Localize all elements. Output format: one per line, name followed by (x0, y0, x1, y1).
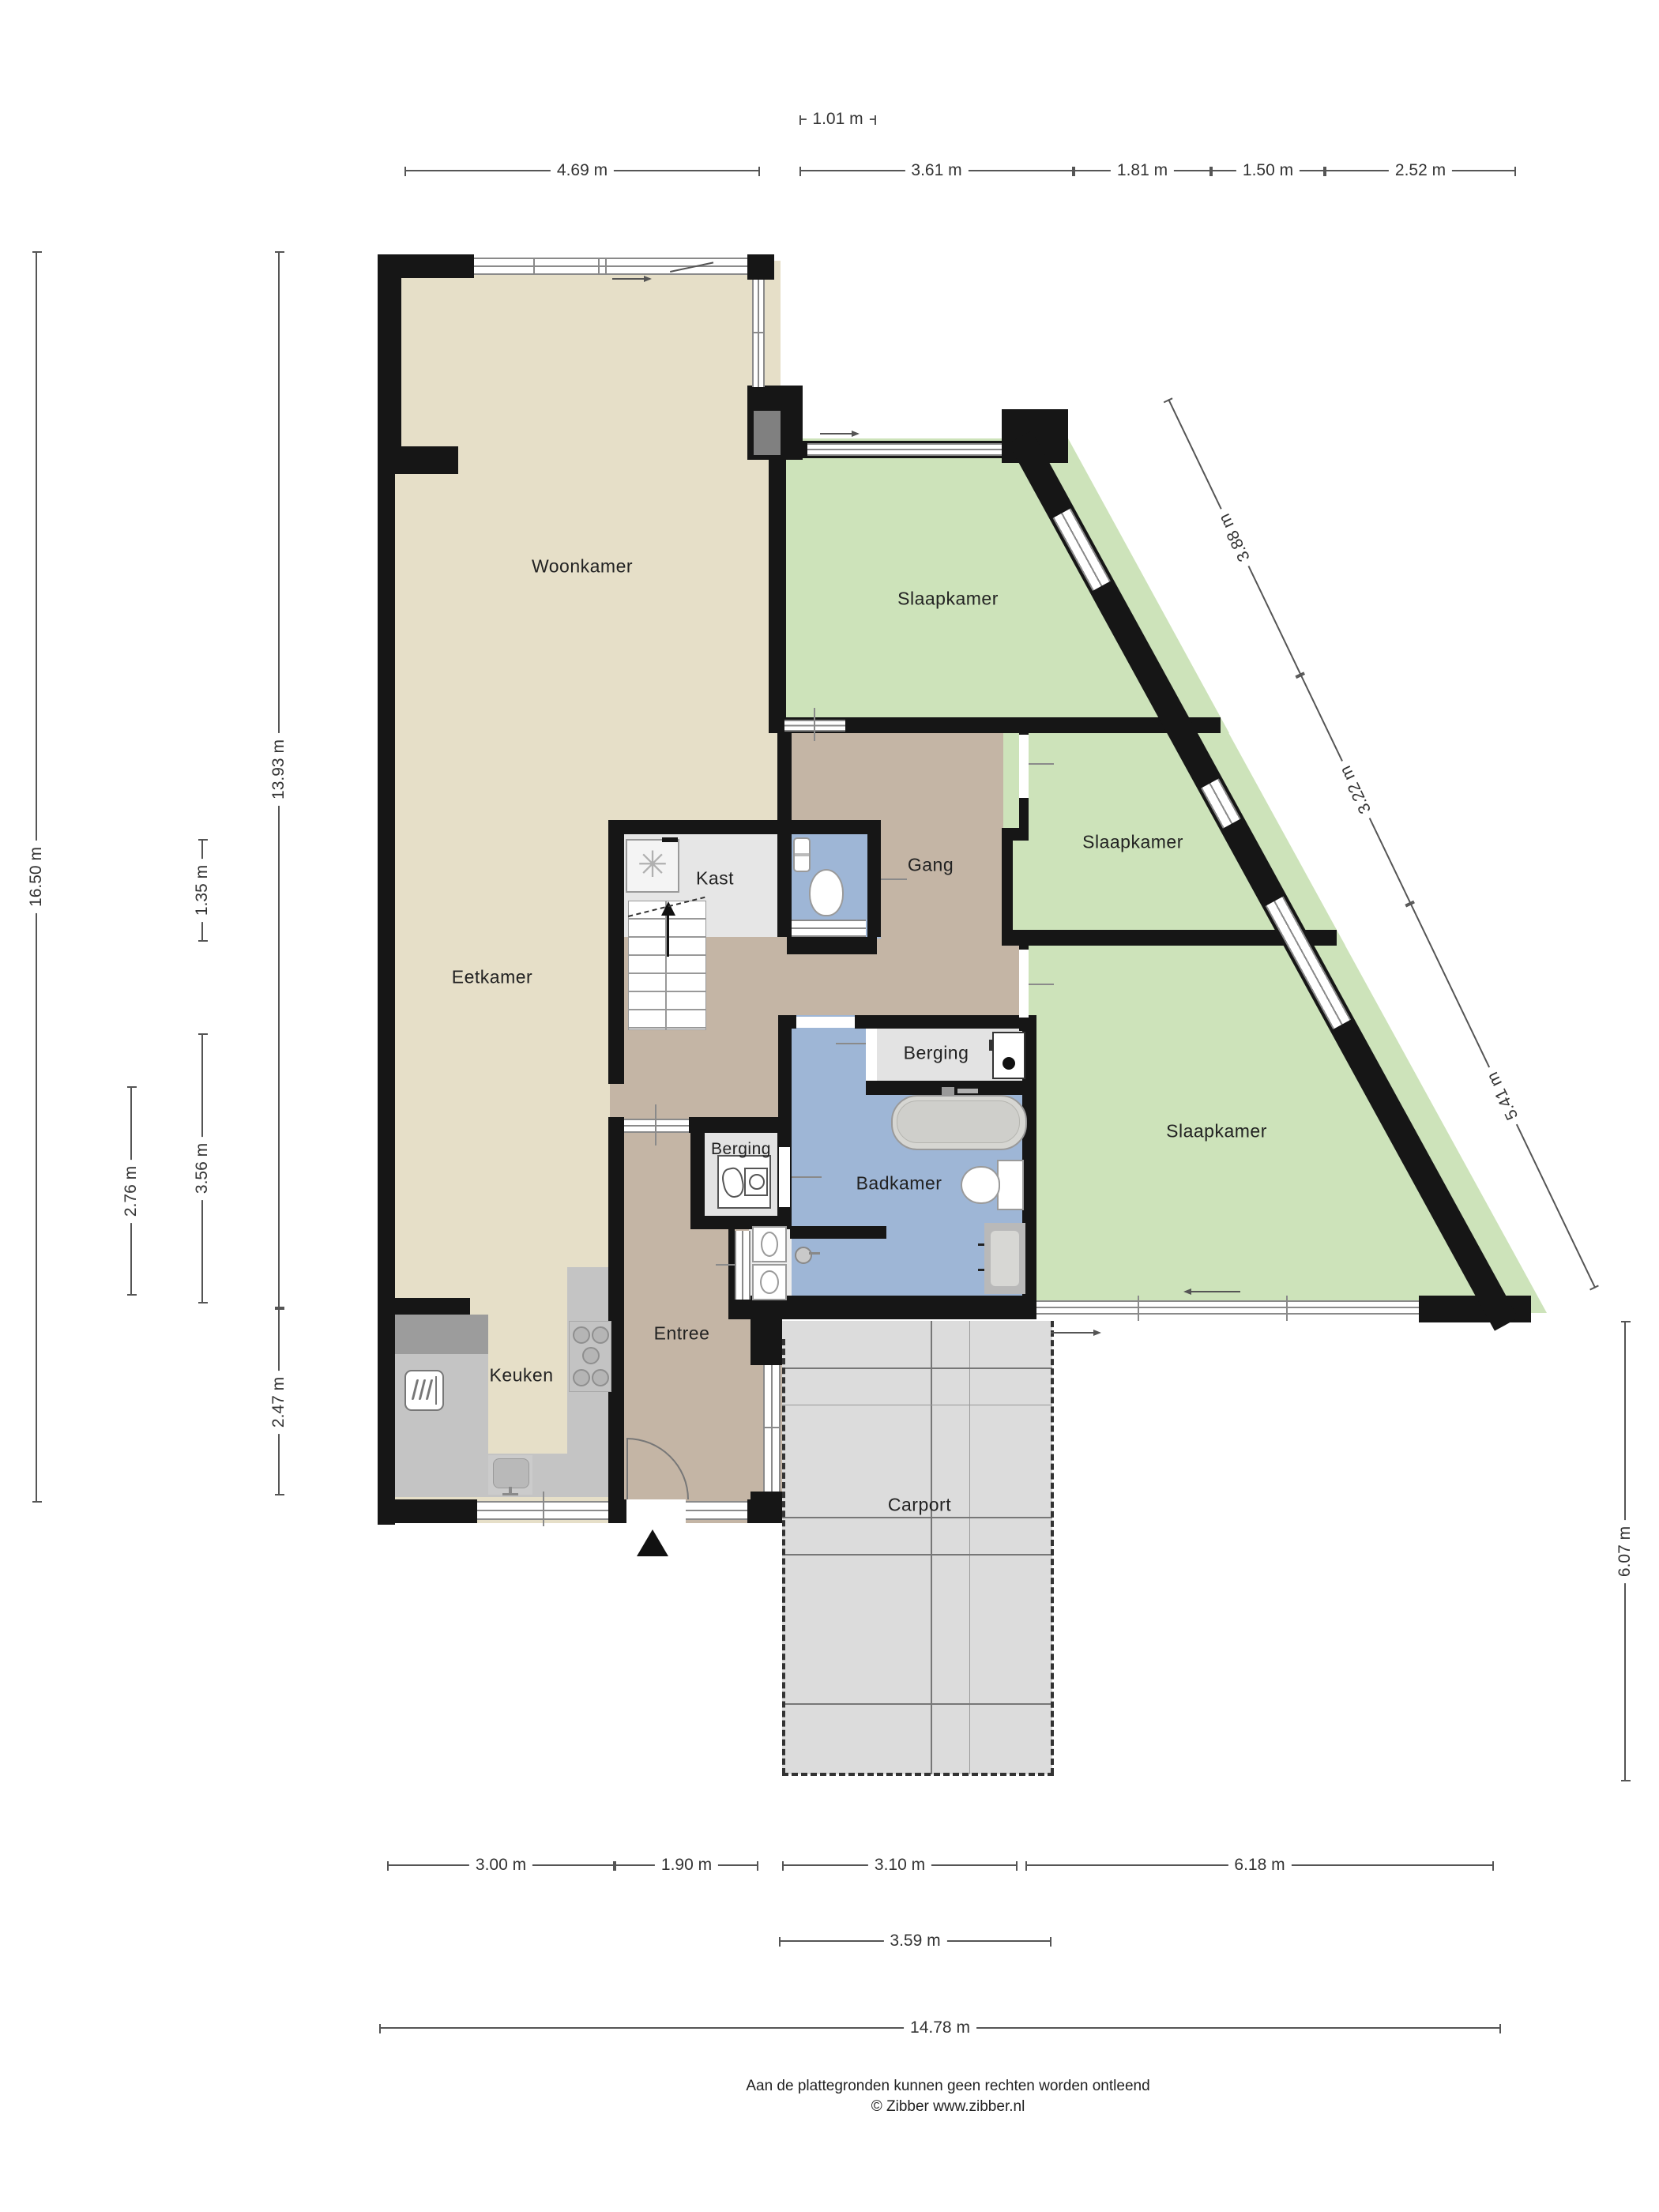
dim-label: 3.61 m (905, 161, 968, 180)
dim-label: 2.76 m (122, 1159, 141, 1222)
boiler-icon (752, 1226, 787, 1262)
shower-tray (991, 1231, 1019, 1286)
kitchen-sink (488, 1455, 532, 1495)
room-label-slaapkamer-onder: Slaapkamer (1166, 1121, 1267, 1142)
dim-left-6: 2.47 m (278, 1308, 280, 1495)
boiler-oval (761, 1232, 778, 1257)
stair-arrow-shaft (667, 912, 669, 957)
dim-bottom-1: 3.00 m (387, 1864, 615, 1866)
burner (573, 1369, 590, 1386)
entrance-triangle-marker (637, 1529, 668, 1556)
room-label-keuken: Keuken (489, 1365, 553, 1386)
door-tick (814, 708, 815, 741)
dim-top-2: 3.61 m (799, 170, 1074, 171)
mechanical-unit: ✳ (626, 839, 679, 893)
door-tick (836, 1043, 866, 1044)
dim-label: 16.50 m (27, 841, 46, 913)
dim-left-3: 1.35 m (201, 839, 203, 942)
carport-gridline (782, 1367, 1052, 1369)
shower-cabinet (984, 1223, 1025, 1294)
dim-label: 6.18 m (1228, 1856, 1291, 1875)
window-nis (735, 1231, 750, 1300)
laundry-basket-icon (720, 1166, 746, 1200)
room-label-berging-gang: Berging (904, 1043, 969, 1064)
door-tick (792, 1176, 822, 1178)
bath-faucet (942, 1087, 954, 1095)
wall (855, 1015, 1036, 1029)
window-mullion (752, 332, 765, 333)
burner (582, 1347, 600, 1364)
wall (787, 937, 877, 954)
dim-label: 1.81 m (1111, 161, 1174, 180)
room-label-kast: Kast (696, 868, 734, 890)
bath-faucet (957, 1089, 978, 1093)
wall (608, 1117, 624, 1133)
dim-label: 3.56 m (193, 1137, 212, 1200)
wall (1002, 841, 1013, 930)
door-tick (1286, 1296, 1288, 1321)
wall (1002, 828, 1029, 841)
burner (573, 1326, 590, 1344)
window-direction-arrow (612, 278, 650, 280)
window-slaapkamer-onder-zuid (1036, 1300, 1419, 1315)
door-berging-gang (866, 1029, 877, 1081)
door-badkamer (796, 1017, 855, 1028)
dim-bottom-2: 1.90 m (615, 1864, 758, 1866)
floorplan-canvas: ✳ (0, 0, 1659, 2212)
door-tick (1029, 763, 1054, 765)
wall (747, 1499, 782, 1523)
chimney-flue (754, 411, 781, 455)
wall (378, 254, 401, 474)
dim-label: 14.78 m (904, 2018, 976, 2037)
dim-label: 2.47 m (269, 1370, 288, 1433)
carport-dashed-right (1051, 1321, 1054, 1774)
dim-label: 5.41 m (1480, 1063, 1525, 1129)
berging-appliances (717, 1155, 771, 1209)
dim-label: 1.35 m (193, 859, 212, 922)
door-toilet (792, 920, 866, 937)
door-berging-entree (779, 1147, 790, 1207)
copyright-text: © Zibber www.zibber.nl (871, 2098, 1025, 2116)
wall (608, 1499, 626, 1523)
carport-dashed-left (782, 1339, 785, 1774)
wall (689, 1117, 792, 1133)
wall (608, 820, 881, 834)
window-mullion (533, 258, 535, 275)
dim-label: 3.22 m (1334, 757, 1378, 822)
burner (592, 1326, 609, 1344)
carport-gridline (782, 1554, 1052, 1556)
dim-top-1: 4.69 m (404, 170, 760, 171)
disclaimer-text: Aan de plattegronden kunnen geen rechten… (746, 2078, 1149, 2095)
door-tick (1138, 1296, 1139, 1321)
kitchen-cabinet-tall (395, 1315, 488, 1354)
wall (608, 1133, 624, 1499)
room-label-entree: Entree (654, 1323, 710, 1345)
wall (690, 1133, 705, 1228)
dim-top-5: 2.52 m (1325, 170, 1516, 171)
carport-gridline (782, 1517, 1052, 1518)
door-tick (655, 1104, 656, 1145)
room-label-slaapkamer-midden: Slaapkamer (1082, 832, 1183, 853)
dim-bottom-5: 3.59 m (779, 1940, 1051, 1942)
dim-bottom-4: 6.18 m (1025, 1864, 1494, 1866)
dim-label: 2.52 m (1389, 161, 1452, 180)
window-direction-arrow (1185, 1291, 1240, 1292)
wall (750, 1319, 782, 1365)
oven-door-line (435, 1376, 437, 1405)
front-door-gap (626, 1499, 686, 1523)
door-slaapkamer-midden (1019, 735, 1029, 798)
burner (592, 1369, 609, 1386)
window-woonkamer-right (752, 280, 765, 387)
window-mullion (763, 1427, 781, 1428)
sink-faucet-bar (502, 1493, 518, 1495)
dim-label: 3.59 m (883, 1932, 946, 1951)
heat-wave (426, 1379, 433, 1400)
heat-wave (412, 1379, 419, 1400)
washer-detail (989, 1040, 994, 1051)
hob-icon (569, 1321, 611, 1392)
dim-label: 6.07 m (1616, 1519, 1635, 1582)
room-label-slaapkamer-boven: Slaapkamer (897, 589, 999, 610)
room-label-carport: Carport (888, 1495, 951, 1516)
carport-floor (782, 1321, 1052, 1774)
basin-oval (760, 1270, 779, 1294)
washer-door (1003, 1057, 1015, 1070)
window-direction-arrow (820, 433, 858, 434)
dim-top-inset: 1.01 m (799, 118, 876, 120)
bathtub-inner (897, 1100, 1020, 1143)
dim-label: 4.69 m (551, 161, 614, 180)
window-slaapkamer-boven (807, 443, 1002, 456)
wall (747, 254, 774, 280)
dim-bottom-3: 3.10 m (782, 1864, 1018, 1866)
window-woonkamer-top (474, 258, 747, 275)
dim-left-1: 16.50 m (36, 251, 37, 1503)
room-label-badkamer: Badkamer (856, 1173, 942, 1194)
door-tick (543, 1492, 544, 1526)
wall (790, 1226, 886, 1239)
wall (378, 474, 395, 1525)
dim-label: 13.93 m (269, 733, 288, 806)
dim-right: 6.07 m (1624, 1321, 1626, 1781)
staircase (628, 901, 706, 1030)
room-label-berging-entree: Berging (711, 1140, 771, 1159)
shower-door-mark (978, 1269, 984, 1271)
door-tick (1029, 984, 1054, 985)
dim-left-4: 3.56 m (201, 1033, 203, 1303)
window-entree-oost (763, 1365, 781, 1492)
fan-icon: ✳ (638, 843, 668, 886)
room-label-woonkamer: Woonkamer (532, 556, 633, 577)
dim-label: 3.10 m (868, 1856, 931, 1875)
toilet-icon (961, 1166, 1000, 1204)
dim-diag-2: 3.22 m (1300, 675, 1412, 904)
toilet-icon (809, 869, 844, 916)
heat-wave (419, 1379, 426, 1400)
wall (378, 446, 458, 474)
dryer-door (749, 1174, 765, 1190)
door-slaapkamer-onder (1019, 950, 1029, 1018)
room-label-eetkamer: Eetkamer (452, 967, 532, 988)
wall (378, 254, 474, 278)
window-mullion (598, 258, 600, 275)
washing-machine (992, 1032, 1025, 1079)
shower-door-mark (978, 1243, 984, 1246)
carport-gridline (782, 1703, 1052, 1705)
glass-door-hal (624, 1119, 689, 1133)
carport-gridline (931, 1321, 932, 1774)
dim-diag-1: 3.88 m (1168, 399, 1301, 675)
wall (378, 1499, 477, 1523)
dim-left-5: 2.76 m (130, 1086, 132, 1296)
door-tick (716, 1264, 736, 1266)
window-mullion (605, 258, 607, 275)
mechanical-unit-mark (662, 837, 678, 842)
shower-arm-icon (809, 1252, 820, 1255)
wall (769, 458, 786, 733)
door-tick (881, 878, 907, 880)
oven-icon (404, 1370, 444, 1411)
dim-label: 3.88 m (1213, 505, 1257, 570)
carport-gridline (782, 1405, 1052, 1405)
dim-top-3: 1.81 m (1074, 170, 1211, 171)
washbasin-icon (752, 1264, 787, 1300)
window-direction-arrow (1051, 1332, 1100, 1334)
dim-label: 3.00 m (469, 1856, 532, 1875)
wall (867, 834, 881, 937)
dim-label: 1.01 m (806, 110, 869, 129)
room-label-gang: Gang (908, 855, 954, 876)
dim-bottom-6: 14.78 m (379, 2027, 1501, 2029)
shower-head-icon (795, 1247, 812, 1264)
carport-dashed-bottom (782, 1773, 1054, 1776)
wall (378, 1298, 470, 1315)
carport-gridline (969, 1321, 970, 1774)
dim-top-4: 1.50 m (1211, 170, 1325, 171)
wall (608, 820, 624, 1084)
dim-left-2: 13.93 m (278, 251, 280, 1308)
dim-label: 1.50 m (1236, 161, 1300, 180)
bathtub (891, 1095, 1027, 1150)
window-entree-zuid (686, 1501, 747, 1520)
sink-basin (493, 1458, 529, 1488)
dryer-icon (744, 1168, 768, 1196)
dim-label: 1.90 m (655, 1856, 718, 1875)
toilet-tank (997, 1160, 1024, 1210)
radiator (793, 837, 811, 872)
